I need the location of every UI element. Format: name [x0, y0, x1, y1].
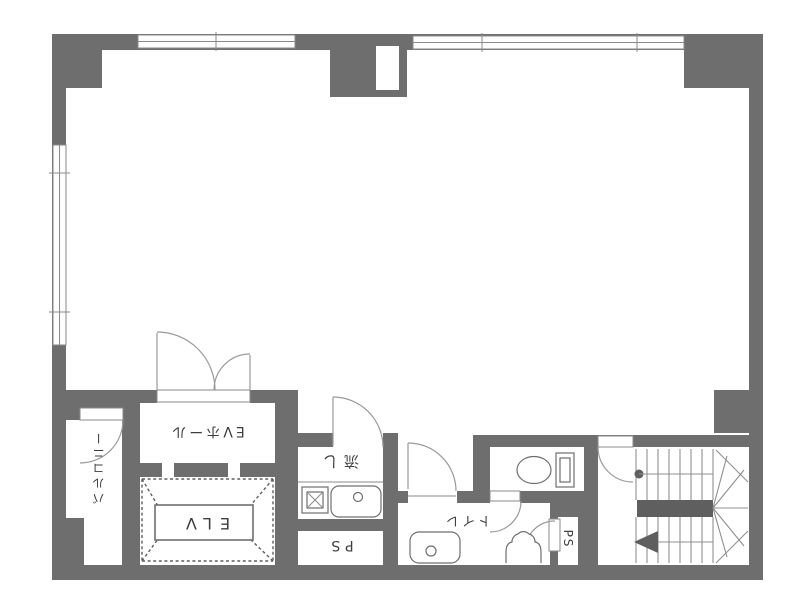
window-top-left [138, 32, 295, 51]
wall-ps-left-upper [550, 503, 558, 519]
stove-fixture [302, 487, 328, 513]
wall-toilet-stair-divider [584, 447, 598, 491]
toilet-lobby-door [408, 443, 456, 496]
entrance-double-door [157, 332, 250, 402]
room-label-ev-hall: EVホール [169, 424, 244, 438]
stair-center-divider [637, 500, 713, 517]
wall-ev-right [275, 390, 298, 565]
stair-door [598, 436, 633, 482]
pillar-shaft-recess [376, 46, 399, 90]
wall-lobby-door-stub-right [457, 491, 473, 503]
stair-arrow [634, 531, 713, 553]
plan-geometry [0, 0, 787, 594]
corner-pillar-bottom-left [52, 518, 84, 580]
wall-kitchen-ps-divider [298, 519, 383, 531]
wall-bottom [52, 565, 763, 580]
corner-pillar-top-right [684, 34, 763, 88]
wall-ps-top [558, 503, 598, 517]
wall-ev-top-left [140, 390, 157, 403]
ps-door-leaf [549, 519, 560, 551]
pillar-right-mid [714, 390, 763, 433]
room-label-pipe-space-stairs: PS [562, 530, 574, 549]
window-top-right [413, 33, 684, 52]
wall-balcony-jamb-right [123, 390, 140, 420]
balcony-door-leaf [80, 408, 123, 420]
room-label-elevator: ELV [178, 515, 230, 531]
corner-pillar-top-left [52, 34, 102, 88]
staircase [634, 449, 748, 563]
room-label-toilet: トイレ [443, 514, 491, 527]
stair-direction-up [635, 470, 714, 479]
washbasin-fixture [410, 532, 460, 563]
wall-right [749, 34, 763, 580]
wall-kitchen-right [383, 447, 398, 565]
floor-plan: バルコニー EVホール ELV 流し PS トイレ PS [0, 0, 787, 594]
room-label-kitchen-sink: 流し [317, 454, 359, 469]
wall-kitchen-top-right [383, 433, 398, 447]
wall-lobby-door-stub-left [398, 491, 408, 503]
kitchen-counter [298, 482, 383, 517]
room-label-balcony: バルコニー [93, 430, 105, 505]
wall-ps-right [578, 517, 598, 565]
wall-ps-left-lower [550, 551, 558, 570]
stair-winder-fan [713, 450, 748, 563]
stair-door-leaf [598, 436, 633, 447]
room-label-pipe-space-kitchen: PS [326, 538, 353, 552]
entrance-door-leaf-closed [157, 390, 250, 402]
toilet-door [490, 491, 521, 532]
wall-kitchen-top-left [298, 433, 333, 447]
wall-balcony-jamb-left [66, 408, 80, 420]
elevator-door-jamb-left [162, 463, 174, 477]
toilet-door-leaf [490, 491, 520, 501]
stair-arrow-head [634, 531, 658, 553]
kitchen-door [333, 397, 383, 447]
kitchen-sink-fixture [331, 486, 381, 517]
toilet-fixture [517, 453, 574, 487]
hand-basin-fixture [506, 532, 541, 563]
wall-ev-left [122, 420, 140, 565]
wall-evhall-elv-divider [140, 463, 275, 477]
wall-toilet-bottom [520, 491, 598, 503]
elevator-door-jamb-right [228, 463, 240, 477]
